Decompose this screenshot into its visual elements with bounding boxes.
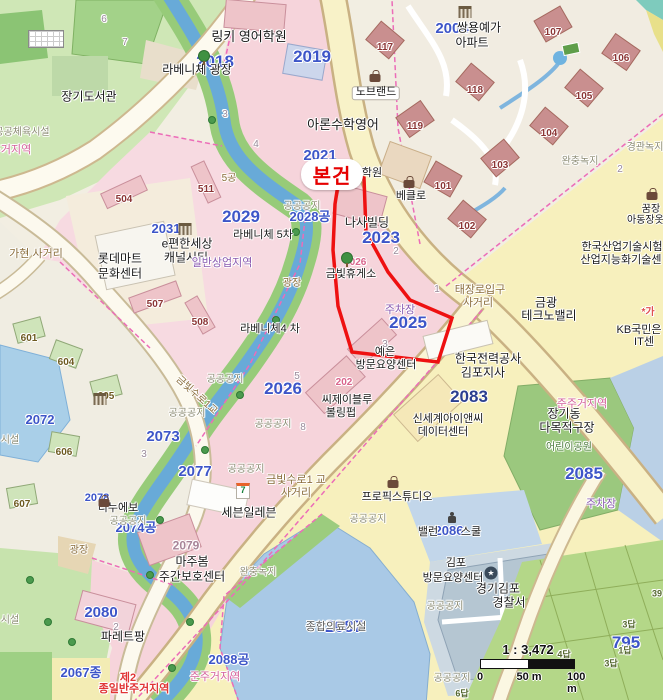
map-base-layer xyxy=(0,0,663,700)
subject-marker[interactable]: 본건 xyxy=(301,159,363,190)
scale-tick-50: 50 m xyxy=(516,671,541,683)
subject-marker-label: 본건 xyxy=(313,160,352,189)
scale-bar-white-segment xyxy=(480,659,530,669)
map-canvas[interactable]: 2018201920212023202520262028공20292031200… xyxy=(0,0,663,700)
scale-tick-100: 100 m xyxy=(567,671,589,695)
scale-tick-0: 0 xyxy=(477,671,483,683)
scale-bar-black-segment xyxy=(528,659,575,669)
scale-ratio-label: 1 : 3,472 xyxy=(502,642,553,657)
